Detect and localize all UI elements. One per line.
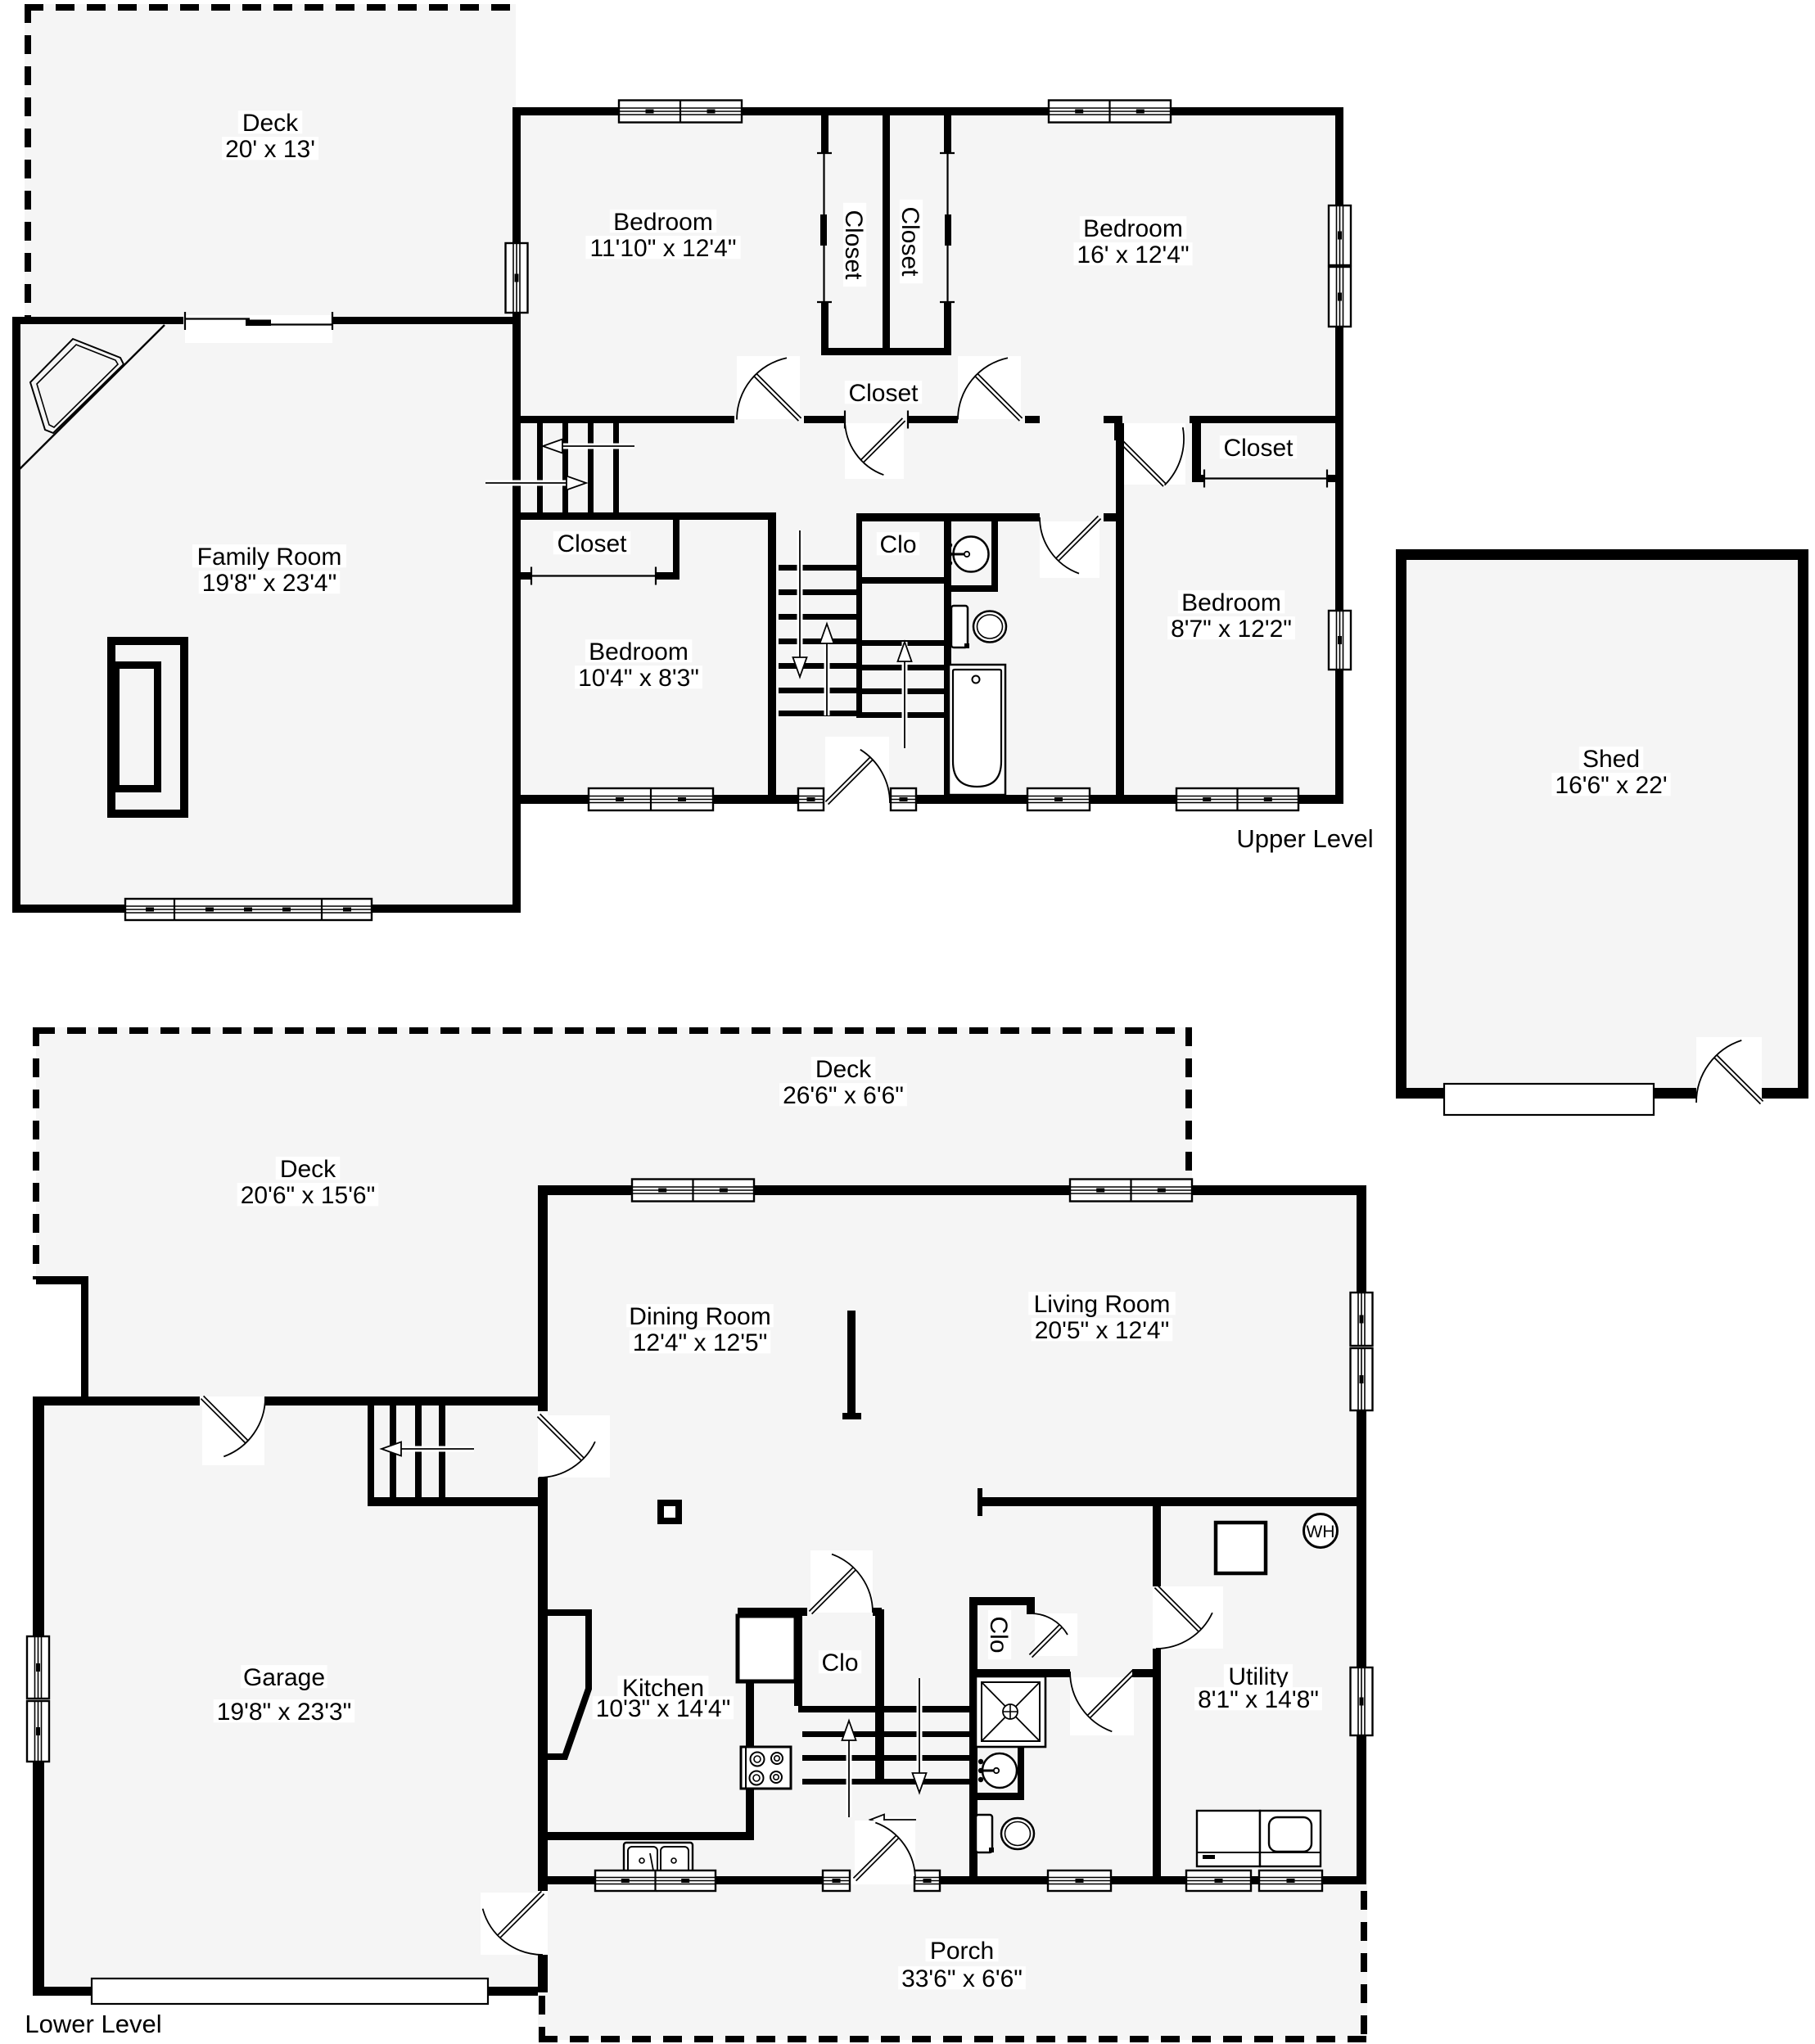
svg-text:Living Room: Living Room	[1034, 1291, 1171, 1318]
svg-text:Clo: Clo	[821, 1649, 858, 1676]
svg-text:16' x 12'4": 16' x 12'4"	[1077, 241, 1189, 268]
svg-text:16'6" x 22': 16'6" x 22'	[1555, 772, 1667, 799]
svg-text:Family Room: Family Room	[197, 544, 342, 571]
svg-text:33'6" x 6'6": 33'6" x 6'6"	[901, 1965, 1023, 1992]
svg-text:Closet: Closet	[848, 380, 919, 407]
svg-text:Deck: Deck	[280, 1156, 336, 1183]
svg-text:Bedroom: Bedroom	[1181, 589, 1281, 616]
svg-text:Shed: Shed	[1582, 746, 1640, 773]
svg-text:Bedroom: Bedroom	[613, 209, 713, 236]
svg-text:Bedroom: Bedroom	[589, 638, 689, 666]
svg-text:8'1" x 14'8": 8'1" x 14'8"	[1198, 1686, 1319, 1713]
svg-text:20'5" x 12'4": 20'5" x 12'4"	[1035, 1317, 1170, 1344]
svg-text:Deck: Deck	[242, 110, 299, 137]
svg-text:Closet: Closet	[1223, 435, 1294, 462]
svg-text:Deck: Deck	[815, 1056, 872, 1083]
svg-text:Dining Room: Dining Room	[629, 1303, 770, 1330]
svg-text:26'6" x 6'6": 26'6" x 6'6"	[783, 1082, 904, 1109]
svg-text:11'10" x 12'4": 11'10" x 12'4"	[590, 235, 737, 262]
svg-text:12'4" x 12'5": 12'4" x 12'5"	[633, 1329, 768, 1356]
svg-text:Garage: Garage	[243, 1664, 325, 1691]
svg-text:Clo: Clo	[879, 531, 916, 558]
svg-text:8'7" x 12'2": 8'7" x 12'2"	[1171, 616, 1292, 643]
svg-text:Upper Level: Upper Level	[1236, 824, 1373, 853]
svg-text:10'4" x 8'3": 10'4" x 8'3"	[578, 665, 699, 692]
svg-text:Closet: Closet	[557, 530, 627, 557]
svg-text:Lower Level: Lower Level	[25, 2010, 161, 2038]
svg-text:20'6" x 15'6": 20'6" x 15'6"	[241, 1182, 376, 1209]
svg-text:19'8" x 23'3": 19'8" x 23'3"	[217, 1699, 352, 1726]
svg-text:Clo: Clo	[985, 1616, 1012, 1653]
svg-text:Closet: Closet	[896, 206, 923, 277]
svg-text:10'3" x 14'4": 10'3" x 14'4"	[596, 1695, 731, 1722]
svg-text:Porch: Porch	[930, 1938, 994, 1965]
svg-text:19'8" x 23'4": 19'8" x 23'4"	[202, 570, 337, 597]
svg-text:20' x 13': 20' x 13'	[225, 136, 315, 163]
svg-text:Closet: Closet	[840, 210, 867, 280]
svg-text:Bedroom: Bedroom	[1083, 215, 1183, 242]
svg-text:WH: WH	[1307, 1523, 1335, 1541]
